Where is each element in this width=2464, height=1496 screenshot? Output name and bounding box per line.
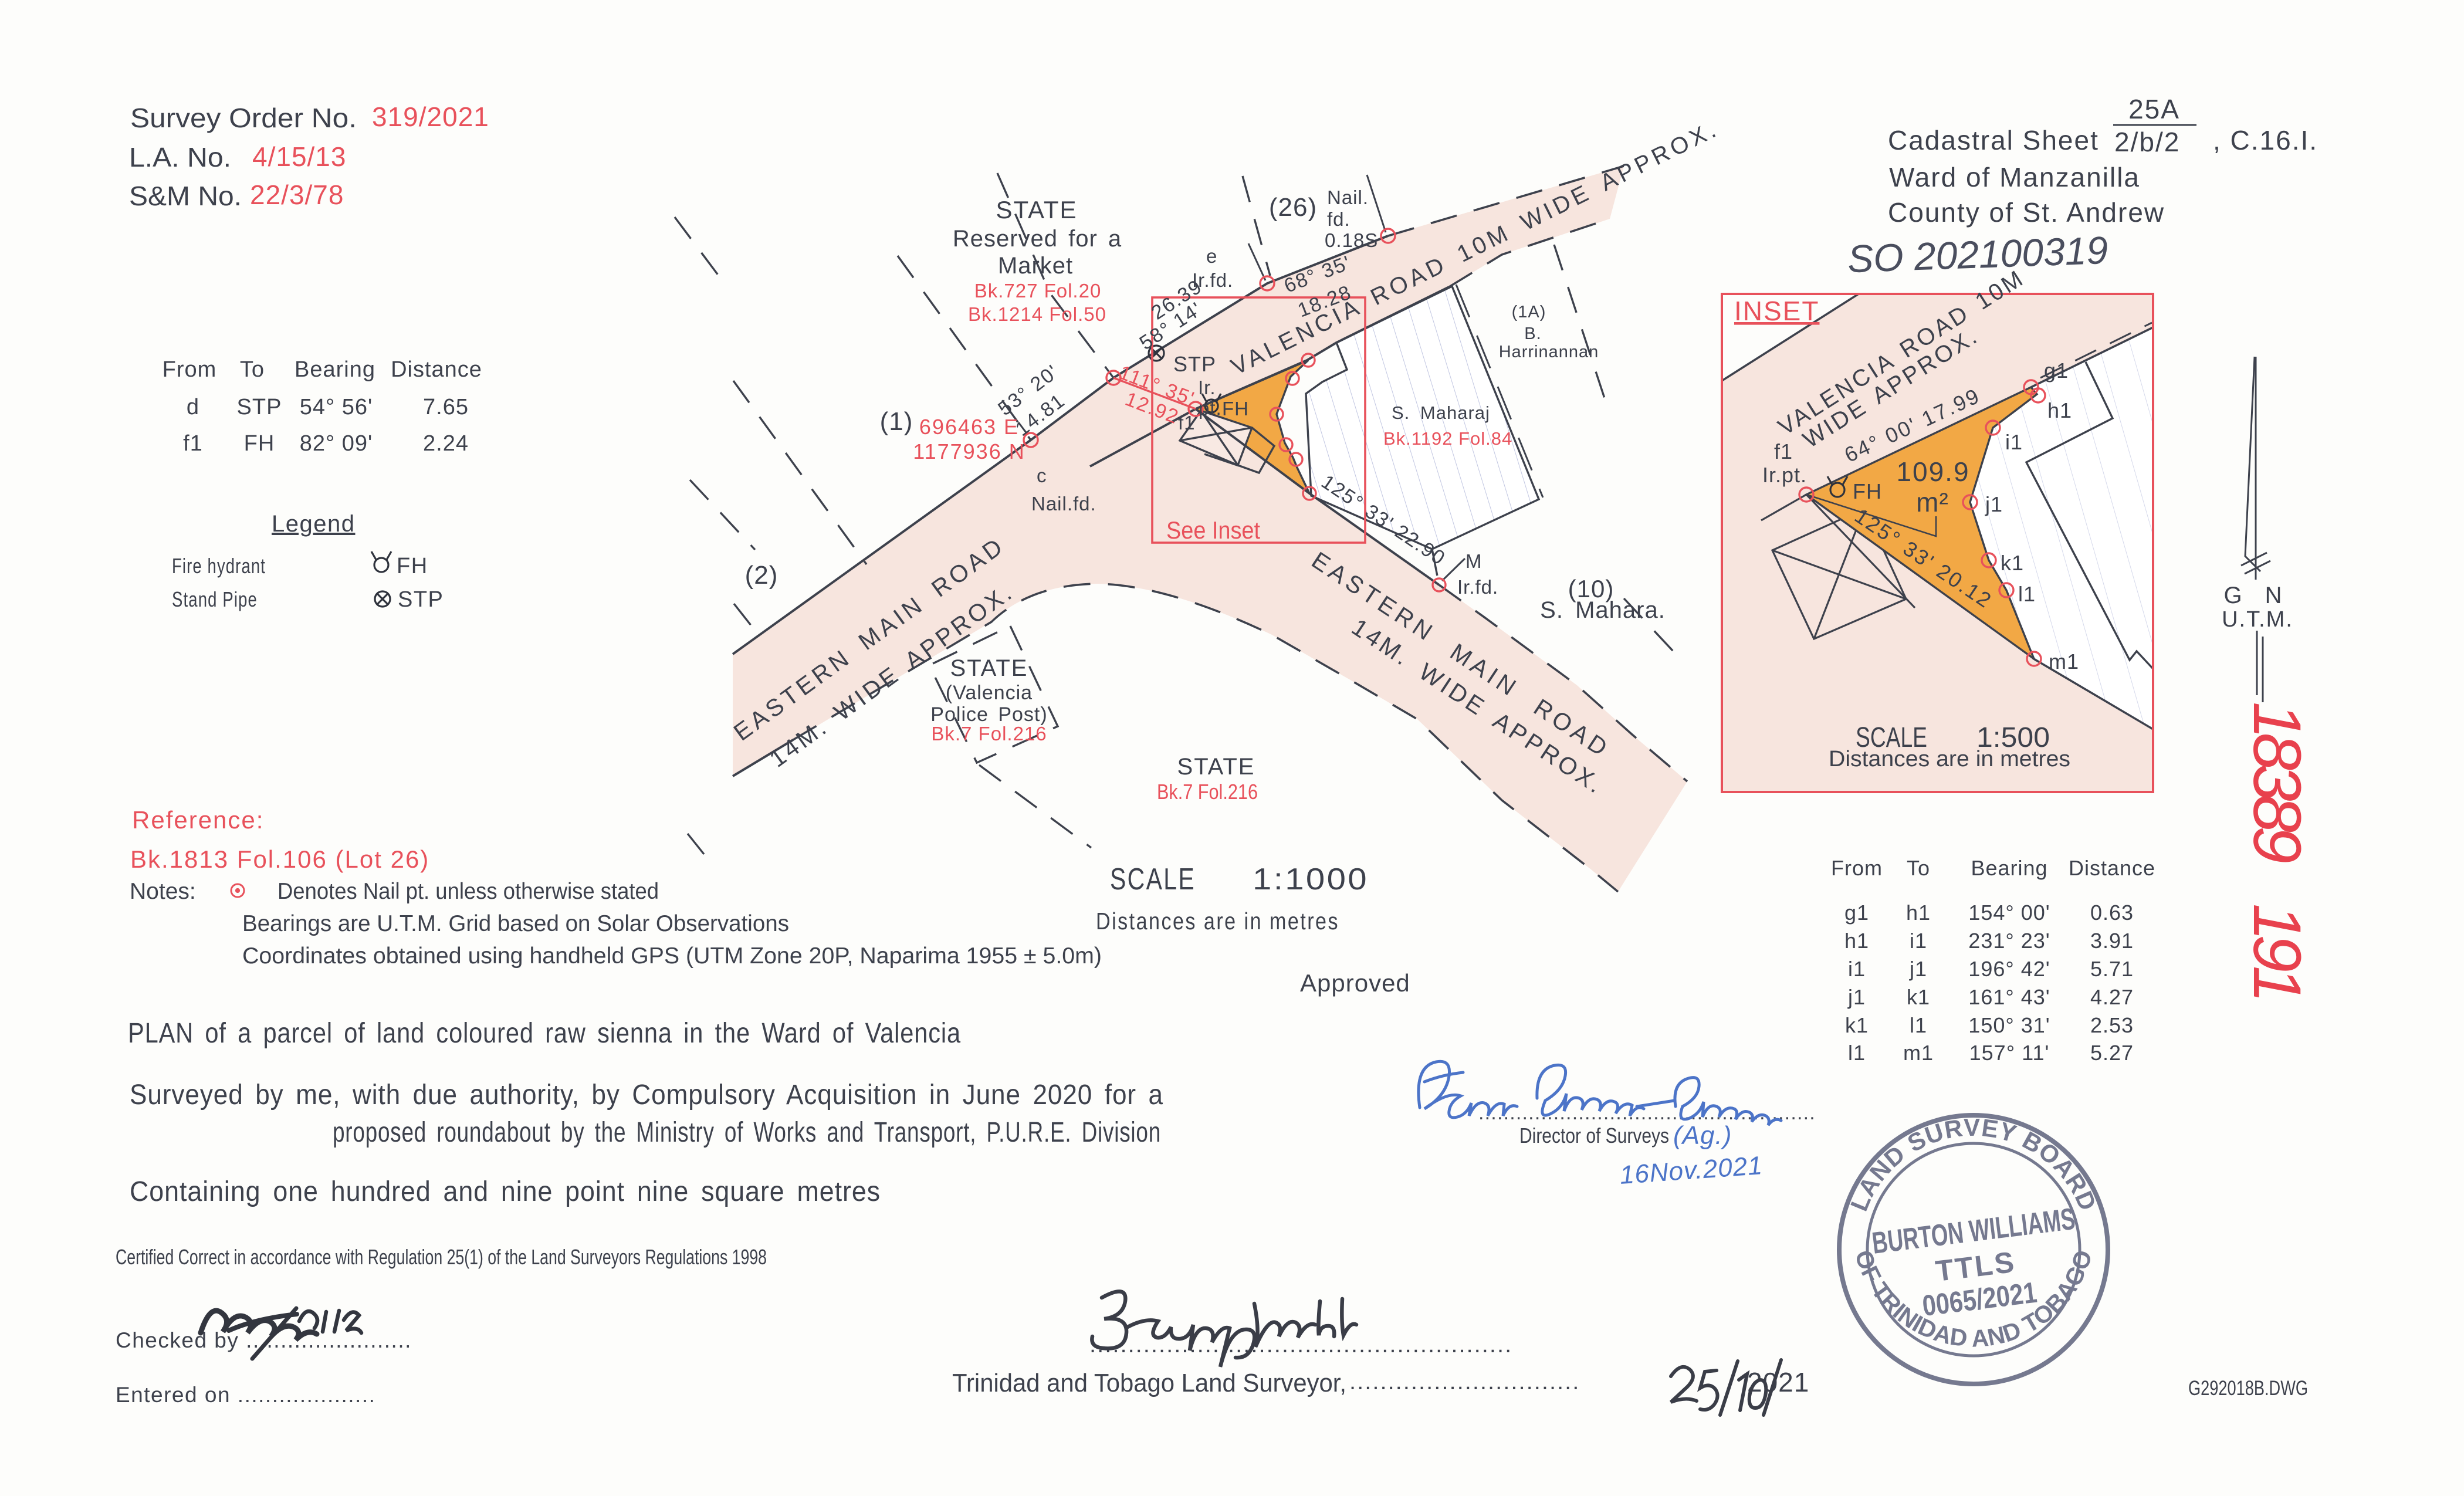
svg-text:1177936 N: 1177936 N [913, 439, 1025, 463]
svg-text:5.71: 5.71 [2090, 957, 2134, 981]
svg-text:STATE: STATE [996, 196, 1077, 224]
svg-text:Bk.7 Fol.216: Bk.7 Fol.216 [1157, 780, 1258, 804]
svg-text:STP: STP [237, 395, 282, 419]
svg-text:696463 E: 696463 E [919, 415, 1019, 439]
svg-text:U.T.M.: U.T.M. [2222, 607, 2293, 632]
svg-text:FH: FH [244, 431, 275, 456]
svg-text:1:1000: 1:1000 [1253, 862, 1369, 896]
svg-text:k1: k1 [1907, 985, 1930, 1009]
svg-text:2.53: 2.53 [2090, 1013, 2134, 1037]
svg-text:, C.16.I.: , C.16.I. [2213, 125, 2318, 155]
svg-text:proposed roundabout by the: proposed roundabout by the Ministry of W… [333, 1117, 1161, 1148]
svg-text:STATE: STATE [950, 655, 1028, 681]
svg-text:m²: m² [1916, 487, 1949, 517]
svg-text:5.27: 5.27 [2090, 1041, 2134, 1065]
svg-text:d: d [187, 395, 199, 419]
svg-text:m1: m1 [1903, 1041, 1934, 1065]
svg-text:G292018B.DWG: G292018B.DWG [2188, 1377, 2308, 1400]
svg-text:Distances are in metres: Distances are in metres [1829, 747, 2070, 771]
svg-text:Fire hydrant: Fire hydrant [172, 554, 266, 578]
svg-text:Market: Market [998, 253, 1073, 279]
svg-text:S. Mahara.: S. Mahara. [1540, 597, 1666, 623]
svg-text:Nail.fd.: Nail.fd. [1031, 493, 1096, 515]
svg-text:Legend: Legend [272, 511, 355, 537]
svg-text:Ir.pt.: Ir.pt. [1762, 463, 1807, 487]
svg-text:pt.: pt. [1199, 397, 1222, 419]
svg-text:2/b/2: 2/b/2 [2114, 127, 2180, 157]
svg-text:(2): (2) [745, 561, 779, 590]
svg-text:Notes:: Notes: [130, 879, 196, 904]
svg-text:l1: l1 [1848, 1041, 1866, 1065]
svg-text:..............................: .............................. [1349, 1369, 1580, 1395]
svg-text:M: M [1465, 550, 1483, 572]
svg-text:j1: j1 [1985, 492, 2003, 516]
svg-text:0.63: 0.63 [2090, 901, 2134, 925]
svg-text:2.24: 2.24 [423, 431, 469, 456]
svg-text:25A: 25A [2128, 94, 2180, 124]
svg-text:Distance: Distance [2069, 856, 2155, 880]
svg-text:g1: g1 [2044, 358, 2069, 383]
svg-text:Bearings are U.T.M. Grid b: Bearings are U.T.M. Grid based on Solar … [242, 911, 789, 936]
svg-text:g1: g1 [1844, 901, 1869, 925]
svg-text:To: To [1907, 856, 1930, 880]
svg-text:STP: STP [1173, 352, 1216, 376]
svg-text:(1): (1) [880, 407, 913, 436]
svg-text:INSET: INSET [1734, 296, 1819, 326]
svg-text:4.27: 4.27 [2090, 985, 2134, 1009]
svg-text:109.9: 109.9 [1896, 456, 1969, 487]
svg-text:Bk.727 Fol.20: Bk.727 Fol.20 [974, 280, 1102, 302]
svg-text:Distance: Distance [391, 357, 482, 382]
svg-text:Harrinannan: Harrinannan [1499, 343, 1599, 361]
svg-text:7.65: 7.65 [423, 395, 469, 419]
svg-text:191: 191 [2239, 903, 2314, 998]
svg-text:From: From [163, 357, 217, 382]
svg-text:231° 23': 231° 23' [1968, 929, 2050, 953]
svg-text:k1: k1 [2001, 551, 2024, 575]
svg-text:l1: l1 [2018, 582, 2036, 606]
svg-text:f1: f1 [1178, 412, 1196, 434]
svg-text:G N: G N [2223, 583, 2290, 608]
svg-text:SO 202100319: SO 202100319 [1847, 228, 2108, 280]
svg-text:i1: i1 [1848, 957, 1866, 981]
svg-text:Denotes Nail pt. unless ot: Denotes Nail pt. unless otherwise stated [277, 879, 659, 904]
svg-text:Bearing: Bearing [1971, 856, 2047, 880]
svg-text:j1: j1 [1847, 985, 1866, 1009]
svg-text:157° 11': 157° 11' [1969, 1041, 2050, 1065]
svg-text:STATE: STATE [1177, 754, 1255, 780]
svg-text:S&M No.: S&M No. [129, 181, 242, 211]
svg-text:(Valencia: (Valencia [946, 682, 1033, 704]
svg-text:FH: FH [1222, 398, 1249, 419]
svg-text:154° 00': 154° 00' [1968, 901, 2050, 925]
svg-text:Approved: Approved [1300, 969, 1410, 997]
svg-text:h1: h1 [1906, 901, 1931, 925]
svg-text:Bk.1192 Fol.84: Bk.1192 Fol.84 [1383, 428, 1512, 449]
svg-text:Bk.1214 Fol.50: Bk.1214 Fol.50 [968, 303, 1106, 325]
svg-text:FH: FH [397, 554, 428, 578]
svg-text:Reserved for a: Reserved for a [953, 226, 1122, 252]
svg-text:h1: h1 [1844, 929, 1869, 953]
svg-text:Reference:: Reference: [132, 806, 264, 834]
svg-text:i1: i1 [1910, 929, 1927, 953]
svg-text:Certified Correct in accord: Certified Correct in accordance with Reg… [116, 1245, 767, 1269]
svg-text:STP: STP [398, 587, 444, 612]
svg-text:Trinidad and Tobago Land S: Trinidad and Tobago Land Surveyor, [952, 1369, 1346, 1397]
svg-text:k1: k1 [1845, 1013, 1869, 1037]
svg-text:196° 42': 196° 42' [1968, 957, 2050, 981]
svg-text:Director of Surveys: Director of Surveys [1519, 1123, 1669, 1148]
svg-text:e: e [1206, 245, 1217, 267]
svg-text:fd.: fd. [1327, 208, 1351, 230]
svg-text:22/3/78: 22/3/78 [250, 180, 344, 210]
svg-text:SCALE: SCALE [1110, 862, 1196, 896]
svg-text:i1: i1 [2005, 430, 2023, 454]
svg-text:h1: h1 [2047, 398, 2072, 422]
svg-text:S. Maharaj: S. Maharaj [1392, 402, 1490, 423]
svg-text:FH: FH [1853, 479, 1882, 503]
svg-text:From: From [1831, 856, 1883, 880]
svg-text:Survey Order No.: Survey Order No. [130, 103, 357, 133]
svg-text:B.: B. [1524, 324, 1541, 343]
svg-text:(1A): (1A) [1512, 303, 1546, 321]
svg-text:Coordinates obtained using: Coordinates obtained using handheld GPS … [242, 943, 1102, 969]
svg-text:319/2021: 319/2021 [372, 101, 489, 132]
svg-text:Bk.1813 Fol.106 (Lot 26): Bk.1813 Fol.106 (Lot 26) [130, 845, 429, 873]
svg-text:f1: f1 [183, 431, 203, 456]
svg-text:0.18S: 0.18S [1325, 229, 1378, 251]
svg-text:18389: 18389 [2239, 702, 2314, 862]
svg-text:Ir.fd.: Ir.fd. [1457, 576, 1498, 598]
svg-text:(26): (26) [1269, 193, 1317, 222]
svg-text:Cadastral Sheet: Cadastral Sheet [1888, 125, 2099, 155]
svg-text:3.91: 3.91 [2090, 929, 2134, 953]
svg-text:c: c [1037, 465, 1047, 486]
svg-text:See Inset: See Inset [1166, 516, 1260, 544]
svg-text:4/15/13: 4/15/13 [252, 141, 346, 172]
svg-text:Surveyed by me, with due: Surveyed by me, with due authority, by C… [130, 1079, 1163, 1111]
svg-text:Bearing: Bearing [295, 357, 375, 382]
svg-text:m1: m1 [2049, 649, 2079, 673]
svg-text:Ward of Manzanilla: Ward of Manzanilla [1889, 162, 2140, 192]
svg-text:Entered on .................: Entered on .................... [116, 1383, 375, 1407]
svg-text:l1: l1 [1910, 1013, 1927, 1037]
svg-text:Nail.: Nail. [1327, 187, 1369, 208]
svg-text:f1: f1 [1774, 439, 1793, 463]
svg-text:Distances are in metres: Distances are in metres [1096, 908, 1339, 935]
svg-text:Stand Pipe: Stand Pipe [172, 587, 258, 611]
svg-text:PLAN of a parcel of land: PLAN of a parcel of land coloured raw si… [128, 1018, 961, 1049]
svg-text:L.A. No.: L.A. No. [129, 142, 231, 172]
svg-text:To: To [240, 357, 265, 382]
svg-text:j1: j1 [1909, 957, 1927, 981]
svg-text:54° 56': 54° 56' [300, 395, 373, 419]
svg-text:Containing one hundred and: Containing one hundred and nine point ni… [130, 1176, 881, 1207]
svg-text:(Ag.): (Ag.) [1673, 1121, 1732, 1150]
svg-text:Ir.: Ir. [1198, 377, 1216, 398]
svg-text:161° 43': 161° 43' [1968, 985, 2050, 1009]
svg-text:Bk.7 Fol.216: Bk.7 Fol.216 [931, 723, 1047, 744]
svg-text:County of St. Andrew: County of St. Andrew [1888, 197, 2165, 228]
svg-text:150° 31': 150° 31' [1968, 1013, 2050, 1037]
svg-text:82° 09': 82° 09' [300, 431, 373, 456]
